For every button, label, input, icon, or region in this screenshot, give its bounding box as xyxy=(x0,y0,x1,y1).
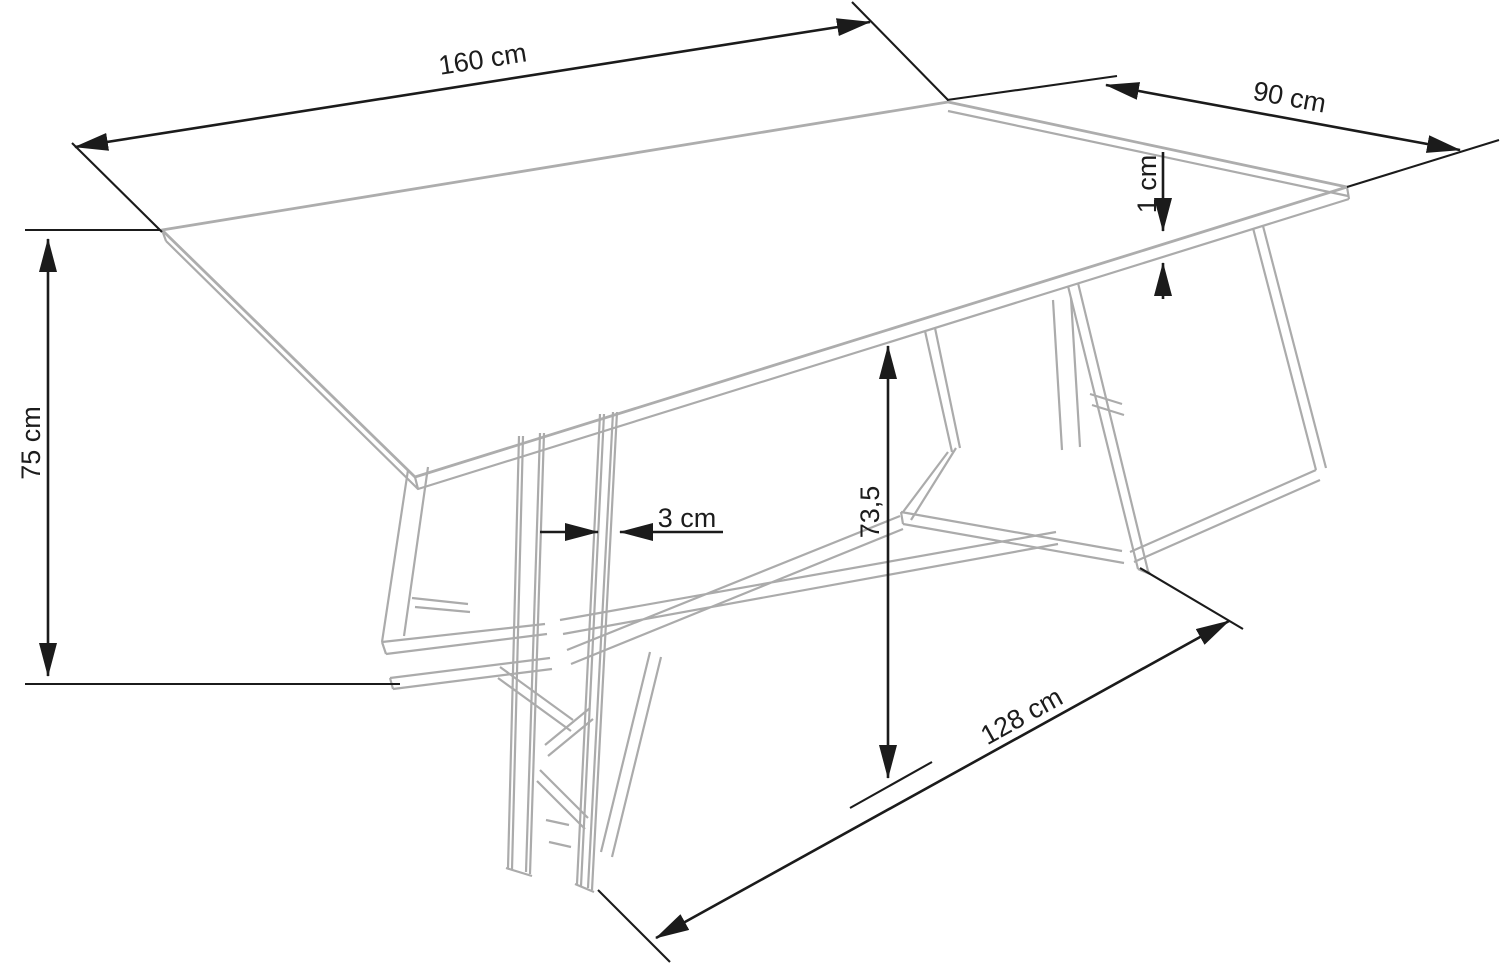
dim-clearance-label: 73,5 xyxy=(855,486,885,539)
diagram-canvas: 160 cm 90 cm 1 cm 75 cm 3 cm 73,5 128 cm xyxy=(0,0,1500,971)
dim-length-arrow-line xyxy=(75,22,870,147)
dim-thickness-label: 1 cm xyxy=(1132,155,1162,214)
dimension-diagram: 160 cm 90 cm 1 cm 75 cm 3 cm 73,5 128 cm xyxy=(0,0,1500,971)
dim-bar-width-3: 3 cm xyxy=(540,503,723,533)
dim-foot-span-128: 128 cm xyxy=(598,568,1243,962)
dim-height-label: 75 cm xyxy=(16,406,46,480)
tabletop xyxy=(162,102,1349,489)
dim-bar-width-label: 3 cm xyxy=(658,503,717,533)
dim-clearance-extension-tick xyxy=(850,762,932,808)
left-leg-frame xyxy=(382,467,552,689)
dim-foot-span-label: 128 cm xyxy=(976,682,1068,751)
stretcher-beam xyxy=(560,516,1058,857)
dim-length-label: 160 cm xyxy=(437,37,529,80)
dim-foot-span-arrow-line xyxy=(656,621,1229,938)
dim-clearance-73-5: 73,5 xyxy=(850,346,932,808)
dim-foot-span-extension-lines xyxy=(598,568,1243,962)
stretcher-bars xyxy=(560,516,1058,857)
dim-width-label: 90 cm xyxy=(1251,76,1329,119)
